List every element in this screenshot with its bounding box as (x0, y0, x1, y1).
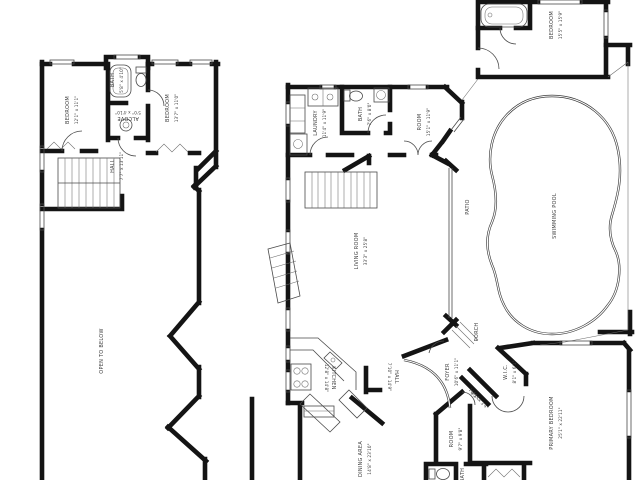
door-arc (500, 28, 516, 44)
sink-drain (123, 122, 129, 128)
kitchen-island (339, 390, 367, 418)
main-fixtures (290, 88, 450, 480)
room-label: BATH (358, 107, 364, 121)
door-arc (478, 48, 499, 69)
room-dims: 10'6" x 11'1" (454, 358, 459, 387)
room-dims: 7'7" x 13'11" (119, 152, 124, 181)
pool-area: SWIMMING POOL (462, 62, 628, 345)
burner (302, 381, 308, 387)
window (320, 85, 336, 89)
laundry-counter (290, 95, 305, 133)
window (50, 60, 74, 64)
staircase (305, 172, 377, 208)
window (114, 55, 140, 59)
sink-basin (294, 140, 303, 149)
toilet-bowl (136, 74, 146, 87)
window (560, 341, 592, 345)
patio-glass-wall (449, 168, 452, 318)
room-label: FOYER (445, 363, 451, 381)
room-dims: 15'1" x 11'9" (426, 108, 431, 137)
toilet-tank (136, 67, 146, 73)
counter-divider (290, 108, 305, 121)
burner (302, 368, 308, 374)
room-dims: 15'5" x 15'9" (558, 11, 563, 40)
window (286, 230, 290, 254)
window (604, 10, 608, 38)
room-label: PRIMARY BEDROOM (549, 396, 555, 449)
patio-door-caps (446, 161, 456, 325)
room-label: OPEN TO BELOW (99, 328, 105, 373)
double-door-arcs (404, 141, 432, 155)
suite-walls (478, 2, 608, 77)
main-floor-plan: BEDROOM 15'5" x 15'9" SWIMMING POOL (268, 0, 632, 480)
floor-plan-canvas: BEDROOM 12'1" x 11'1" BATH 5'8" x 4'10" … (0, 0, 640, 480)
room-dims: 12'8" x 14'8" (324, 364, 329, 393)
closet-door-zigzag (47, 142, 75, 149)
closet-door-zigzag (156, 144, 188, 152)
room-label: LAUNDRY (313, 110, 319, 136)
room-dims: 11'4" x 11'9" (322, 109, 327, 138)
room-label: ROOM (449, 431, 455, 448)
deck-edge (462, 62, 628, 345)
washer-door (312, 94, 318, 100)
main-walls (288, 45, 632, 480)
room-dims: 5'8" x 4'10" (119, 67, 124, 93)
suite: BEDROOM 15'5" x 15'9" (478, 0, 608, 77)
room-dims: 14'8" x 23'10" (367, 443, 372, 474)
sink-drain (331, 358, 335, 362)
toilet-bowl (437, 469, 450, 480)
toilet-bowl (350, 91, 363, 101)
toilet-tank (429, 469, 435, 479)
window (408, 85, 428, 89)
window (286, 370, 290, 392)
tub-faucet (488, 13, 492, 17)
laundry-sink (290, 134, 307, 155)
room-dims: 13'7" x 11'0" (174, 94, 179, 123)
room-label: PORCH (474, 323, 480, 342)
window (627, 390, 631, 438)
wall (168, 190, 206, 480)
bathtub-inner (485, 7, 523, 24)
room-label: LIVING ROOM (354, 233, 360, 270)
window (286, 346, 290, 362)
room-label: BATH (460, 468, 466, 480)
door-arc (310, 137, 328, 155)
room-label: BEDROOM (165, 94, 171, 122)
bath-walls (342, 87, 390, 133)
ramp-outline (268, 243, 300, 303)
floor-plan-image: BEDROOM 12'1" x 11'1" BATH 5'8" x 4'10" … (0, 0, 640, 480)
room-dims: 33'3" x 25'8" (363, 237, 368, 266)
room-label: BEDROOM (65, 96, 71, 124)
room-label: PATIO (465, 199, 471, 214)
room-label: KITCHEN (330, 366, 336, 389)
dryer-door (327, 94, 333, 100)
upper-floor-plan: BEDROOM 12'1" x 11'1" BATH 5'8" x 4'10" … (40, 55, 252, 480)
closet-door-zigzag (488, 469, 520, 477)
window (538, 0, 582, 4)
small-room-walls (426, 392, 486, 480)
sink-basin (377, 91, 386, 100)
upper-labels: BEDROOM 12'1" x 11'1" BATH 5'8" x 4'10" … (65, 67, 179, 374)
room-dims: 7'6" x 8'0" (367, 102, 372, 125)
room-label: W.I.C. (503, 364, 509, 380)
room-dims: 7'10" x 14'9" (387, 363, 392, 392)
window (152, 60, 178, 64)
dining-west-wall (288, 403, 302, 480)
pool-label: SWIMMING POOL (552, 193, 558, 239)
room-label: ROOM (417, 114, 423, 131)
toilet-tank (344, 90, 350, 101)
window (286, 308, 290, 331)
room-label: HALL (393, 370, 399, 384)
window (190, 60, 212, 64)
window (286, 178, 290, 202)
room-dims: 9'7" x 9'8" (458, 427, 463, 450)
stair-wall (345, 156, 369, 170)
burner (294, 368, 300, 374)
room-dims: 5'0" x 4'10" (115, 110, 141, 115)
upper-windows (40, 55, 212, 230)
room-label: DINING AREA (358, 441, 364, 477)
bedroom2-wall (148, 151, 216, 188)
room-label: BEDROOM (549, 11, 555, 39)
room-dims: 12'1" x 11'1" (74, 96, 79, 125)
stair-wall (42, 196, 122, 209)
burner (294, 381, 300, 387)
door-arc (148, 90, 164, 106)
room-label: HALL (110, 159, 116, 173)
main-stairs (305, 172, 377, 208)
room-dims: 8'1" x 6'1" (512, 360, 517, 383)
window (286, 102, 290, 126)
door-arc (62, 131, 82, 151)
stove (291, 364, 311, 390)
exterior-ramp (268, 243, 300, 303)
hall-walls (352, 368, 382, 423)
stair-treads (312, 172, 370, 208)
room-dims: 25'1" x 22'11" (558, 407, 563, 438)
foyer-curve (404, 322, 478, 408)
room-label: BATH (110, 73, 116, 87)
primary-walls (500, 343, 630, 480)
